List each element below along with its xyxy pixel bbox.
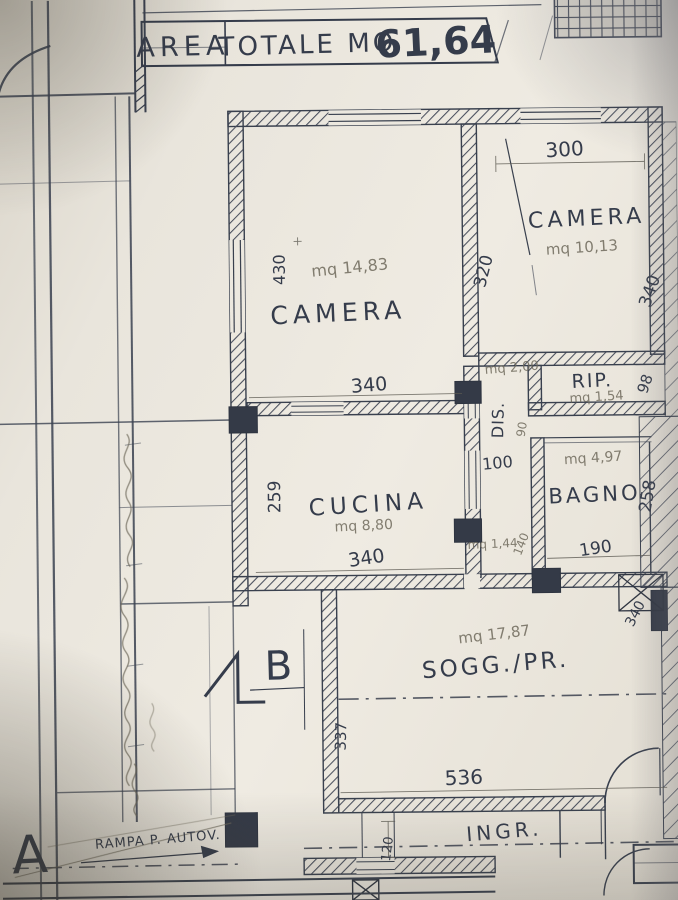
door-arc-bottom-right [603, 849, 650, 896]
dim-cucina-left: 259 [265, 480, 285, 513]
wall-sogg-bottom [339, 796, 605, 813]
floorplan-svg: AREA TOTALE MQ 61,64 CAMERA mq 14,83 430… [0, 0, 678, 900]
dim-dis-small: 140 [510, 531, 531, 558]
door-arc-sogg [604, 748, 659, 803]
wall-camera-divider [461, 124, 479, 356]
opening-cucina-sogg [464, 574, 480, 588]
area-label-bagno: mq 4,97 [564, 449, 623, 469]
opening-dis-100 [465, 451, 481, 509]
dim-dis-opening: 100 [481, 452, 513, 474]
room-label-ingr: INGR. [465, 816, 543, 846]
room-label-camera2: CAMERA [527, 203, 645, 234]
dim-camera1-width: 340 [350, 372, 388, 398]
door-leaf-camera2 [506, 138, 530, 255]
area-label-sogg: mq 17,87 [457, 621, 531, 647]
area-label-cucina: mq 8,80 [334, 517, 393, 536]
area-label-camera2: mq 10,13 [545, 236, 618, 258]
window-top-2 [520, 108, 601, 124]
room-label-camera1: CAMERA [270, 295, 407, 330]
room-label-dis: DIS. [488, 402, 508, 439]
title-value: 61,64 [375, 18, 498, 67]
window-top-1 [328, 109, 421, 125]
section-marker-a: A [11, 824, 50, 887]
dim-dis-door: 90 [514, 421, 530, 438]
dim-sogg-left: 337 [332, 722, 351, 751]
dim-ingr-door: 120 [379, 836, 397, 863]
dim-camera1-height: 430 [270, 254, 289, 285]
post-block-bottom-left [225, 813, 258, 848]
title-totale-mq: TOTALE MQ [217, 28, 397, 63]
title-area: AREA [136, 30, 230, 64]
door-block-camera1 [229, 407, 257, 433]
door-opening-camera1 [291, 402, 343, 416]
room-label-sogg: SOGG./PR. [421, 647, 570, 685]
area-label-dis-small: mq 1,44 [467, 536, 518, 552]
scanned-floorplan: AREA TOTALE MQ 61,64 CAMERA mq 14,83 430… [0, 0, 678, 900]
room-label-cucina: CUCINA [308, 488, 429, 521]
wall-cucina-bottom [233, 574, 464, 590]
wall-sogg-left [321, 590, 338, 813]
stair-grate-symbol [554, 0, 661, 38]
wall-left [228, 111, 248, 606]
section-marker-b: B [264, 643, 293, 690]
wall-ingr-bottom [304, 856, 495, 874]
door-block-bagno [532, 568, 560, 592]
door-x-ingr [353, 880, 379, 900]
area-label-camera1: mq 14,83 [310, 254, 389, 280]
dim-sogg-width: 536 [444, 765, 483, 791]
dim-sogg-right: 340 [622, 598, 649, 629]
dim-camera2-top: 300 [545, 136, 585, 162]
wall-camera1-cucina [247, 400, 464, 415]
door-block-dis [455, 381, 481, 403]
dim-rip-right: 98 [634, 372, 657, 396]
window-left [229, 240, 245, 333]
dim-bagno-width: 190 [578, 537, 613, 562]
floorplan-drawing: AREA TOTALE MQ 61,64 CAMERA mq 14,83 430… [0, 0, 678, 900]
wall-bagno-left [531, 438, 546, 577]
dim-cucina-width: 340 [347, 544, 386, 572]
room-label-bagno: BAGNO [548, 480, 641, 509]
axis-sogg [339, 694, 669, 699]
